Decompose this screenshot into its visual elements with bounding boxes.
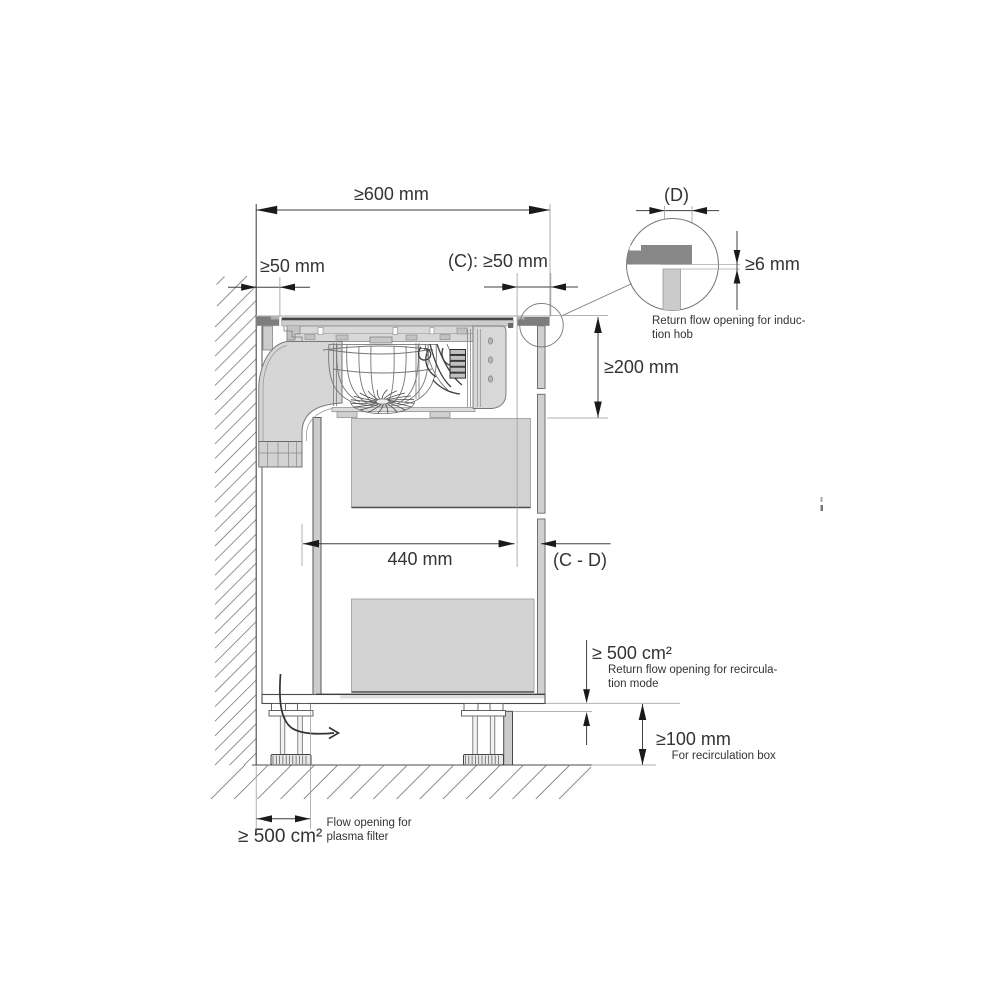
svg-text:Return flow opening for recirc: Return flow opening for recircula- xyxy=(608,664,778,676)
svg-text:≥ 500 cm²: ≥ 500 cm² xyxy=(592,643,672,663)
svg-text:(D): (D) xyxy=(664,185,689,205)
svg-text:For recirculation box: For recirculation box xyxy=(672,750,776,762)
svg-text:≥50 mm: ≥50 mm xyxy=(260,256,325,276)
svg-text:(C): ≥50 mm: (C): ≥50 mm xyxy=(448,251,548,271)
svg-text:tion mode: tion mode xyxy=(608,678,659,690)
svg-text:tion hob: tion hob xyxy=(652,329,693,341)
svg-text:(C - D): (C - D) xyxy=(553,550,607,570)
svg-text:≥ 500 cm²: ≥ 500 cm² xyxy=(238,826,322,847)
svg-text:≥100 mm: ≥100 mm xyxy=(656,729,731,749)
svg-text:plasma filter: plasma filter xyxy=(327,831,389,843)
svg-text:Flow opening for: Flow opening for xyxy=(327,817,412,829)
svg-text:≥6 mm: ≥6 mm xyxy=(745,254,800,274)
svg-text:440 mm: 440 mm xyxy=(388,549,453,569)
svg-text:≥200 mm: ≥200 mm xyxy=(604,357,679,377)
svg-text:Return flow opening for induc-: Return flow opening for induc- xyxy=(652,315,806,327)
svg-text:≥600 mm: ≥600 mm xyxy=(354,184,429,204)
